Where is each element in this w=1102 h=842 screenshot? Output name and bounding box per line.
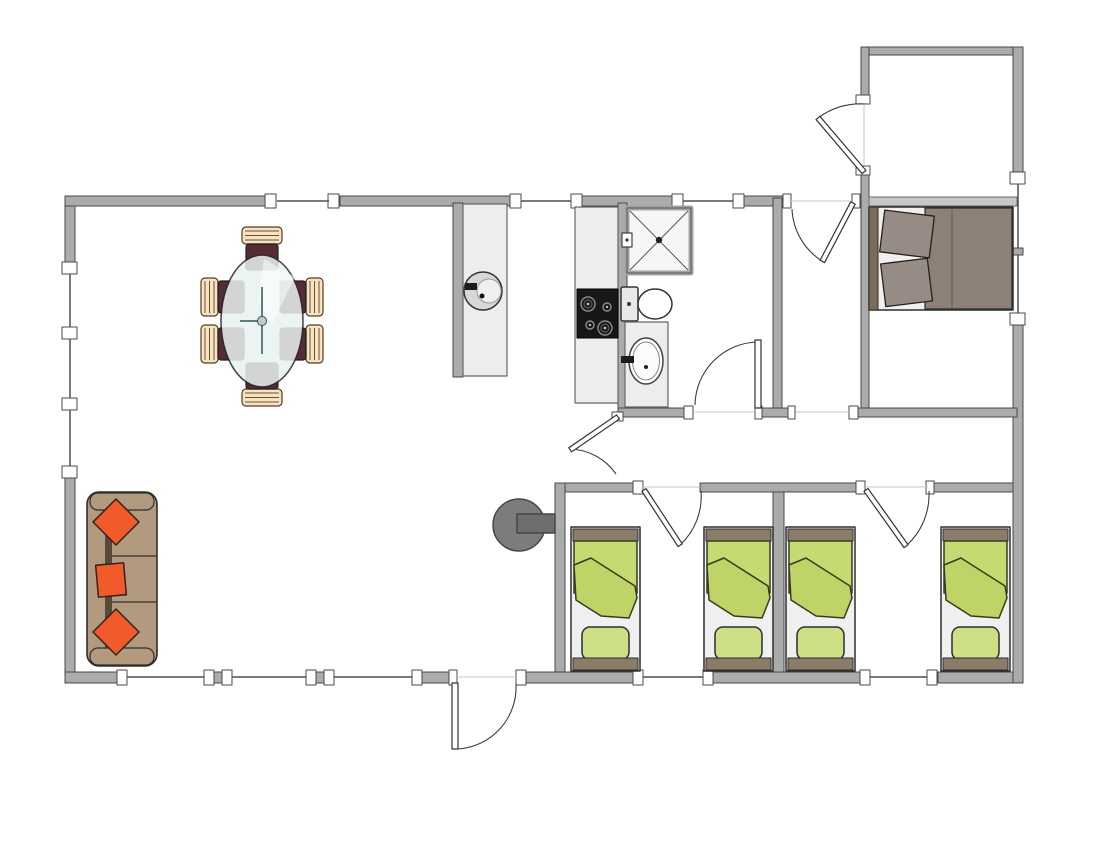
window-cap: [204, 670, 214, 685]
floor-plan: [0, 0, 1102, 842]
wall-bedrooms-left: [555, 483, 565, 672]
bath-drain-dot: [644, 365, 648, 369]
wall-bottom-1: [65, 672, 117, 683]
bed-headboard: [706, 658, 771, 670]
bed-pillow: [797, 627, 844, 660]
window-cap: [412, 670, 422, 685]
stove-flue: [517, 514, 555, 533]
wall-bottom-3: [526, 672, 633, 683]
bed-pillow: [952, 627, 999, 660]
burner-dot: [604, 327, 607, 330]
wall-bedrooms-top-1: [555, 483, 633, 492]
window-cap: [703, 670, 713, 685]
bed-pillow: [715, 627, 762, 660]
bath-faucet: [621, 356, 634, 363]
door-arc: [695, 342, 757, 405]
bathroom: [621, 208, 691, 407]
single-beds: [571, 527, 1010, 671]
shower-drain: [656, 237, 662, 243]
window-cap: [62, 398, 77, 410]
window-cap: [1010, 313, 1025, 325]
bed-pillow: [582, 627, 629, 660]
window-cap: [1010, 172, 1025, 184]
wall-porch-top: [863, 47, 1017, 55]
door-hinge-cap: [516, 670, 526, 685]
window-cap: [733, 194, 744, 208]
window-cap: [860, 670, 870, 685]
wall-corridor-1: [618, 408, 693, 417]
wood-stove: [493, 499, 555, 551]
door-hinge-cap: [684, 406, 693, 419]
window-caps: [62, 95, 1025, 685]
wall-bedrooms-top-3: [928, 483, 1013, 492]
bed-footboard: [943, 529, 1008, 541]
window-cap: [117, 670, 127, 685]
door-arc: [680, 491, 701, 545]
wall-left-lower: [65, 478, 75, 683]
bed-footboard: [706, 529, 771, 541]
floor-plan-canvas: [0, 0, 1102, 842]
wall-bedrooms-divider: [773, 492, 784, 672]
window-cap: [62, 327, 77, 339]
sofa: [87, 492, 157, 666]
kitchen-drain-dot: [480, 294, 485, 299]
threshold-lines: [457, 105, 928, 677]
toilet-bowl: [638, 289, 672, 319]
wall-bath-right: [773, 198, 782, 408]
wall-right-upper: [1013, 47, 1023, 173]
door-arc: [570, 449, 616, 474]
burner-dot: [587, 303, 590, 306]
door-hinge-cap: [783, 194, 791, 208]
wall-corridor-3: [858, 408, 1017, 417]
toilet-tank-dot: [627, 302, 631, 306]
wall-kitchen-partition: [453, 203, 463, 377]
door-hinge-cap: [788, 406, 795, 419]
door-arc: [458, 684, 516, 749]
door-arc: [792, 209, 822, 261]
wall-right-window-divider: [1013, 248, 1023, 255]
wall-bottom-2: [422, 672, 449, 683]
door-hinge-cap: [856, 481, 865, 494]
wall-top-1: [65, 196, 265, 206]
door-arc: [818, 104, 866, 118]
kitchen: [463, 204, 618, 403]
window-cap: [633, 670, 643, 685]
door-hinge-cap: [856, 95, 870, 104]
window-cap: [927, 670, 937, 685]
window-cap: [62, 466, 77, 478]
shower-mixer-dot: [625, 238, 628, 241]
door-leaf-bathroom: [755, 340, 761, 408]
bed-headboard: [573, 658, 638, 670]
bath-sink: [629, 338, 663, 384]
window-cap: [510, 194, 521, 208]
window-cap: [328, 194, 339, 208]
window-cap: [306, 670, 316, 685]
window-cap: [324, 670, 334, 685]
door-leaf-bedroom-2: [864, 489, 908, 548]
window-cap: [571, 194, 582, 208]
double-bed-blanket: [925, 208, 1012, 309]
window-cap: [265, 194, 276, 208]
walls: [65, 47, 1023, 683]
door-arc: [906, 491, 929, 546]
table-center-hub: [258, 317, 267, 326]
burner-dot: [589, 324, 591, 326]
wall-porch-left-lower: [861, 172, 869, 408]
window-cap: [222, 670, 232, 685]
wall-bottom-4: [713, 672, 860, 683]
wall-bedrooms-top-2: [700, 483, 858, 492]
burner-dot: [606, 306, 608, 308]
bed-footboard: [788, 529, 853, 541]
bed-footboard: [573, 529, 638, 541]
bed-headboard: [943, 658, 1008, 670]
door-hinge-cap: [849, 406, 858, 419]
kitchen-faucet: [465, 283, 477, 290]
sofa-armrest-bottom: [90, 648, 154, 665]
double-bed-headboard: [869, 207, 878, 310]
window-cap: [62, 262, 77, 274]
wall-bottom-5: [938, 672, 1013, 683]
double-bed: [869, 207, 1013, 310]
door-leaf-entrance: [452, 683, 458, 749]
sofa-pillow-square: [96, 563, 127, 597]
wall-porch-sill: [869, 197, 1017, 206]
dining-set: [201, 227, 323, 406]
door-leaf-bedroom-1: [642, 489, 682, 547]
double-bed-pillow: [881, 258, 933, 306]
double-bed-pillow: [880, 210, 935, 258]
bed-headboard: [788, 658, 853, 670]
door-hinge-cap: [633, 481, 643, 494]
wall-corridor-2: [762, 408, 788, 417]
door-leaf-vestibule: [820, 202, 855, 263]
kitchen-sink-basin: [477, 279, 501, 303]
door-leaf-hallway: [569, 415, 620, 452]
door-leaf-porch: [816, 116, 866, 173]
wall-right-lower: [1013, 321, 1023, 683]
